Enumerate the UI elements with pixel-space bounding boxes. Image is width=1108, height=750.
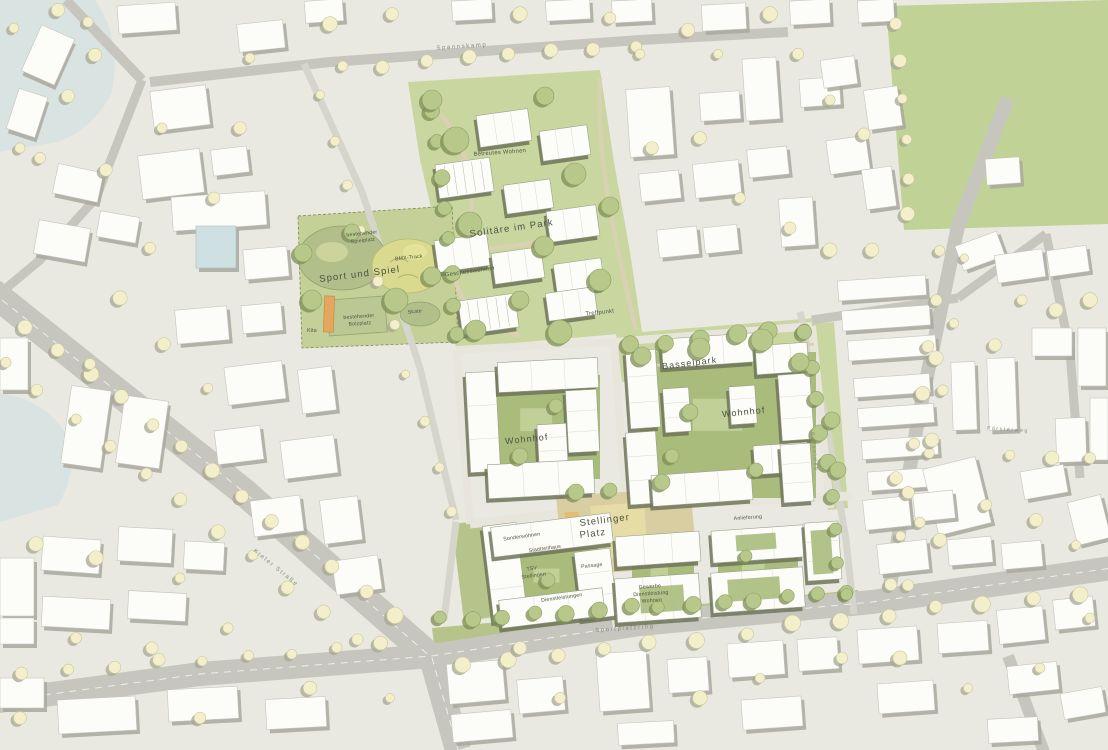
tree-icon: [447, 506, 457, 516]
building: [1032, 328, 1075, 360]
building-roof: [503, 179, 554, 214]
playground-inner: [316, 242, 348, 262]
building: [297, 366, 340, 418]
tree-icon: [1005, 450, 1015, 460]
building: [451, 709, 517, 746]
building-roof: [452, 0, 493, 21]
tree-icon: [782, 589, 795, 602]
tree-icon: [646, 142, 659, 155]
tree-icon: [15, 143, 25, 153]
building: [937, 620, 992, 658]
tree-icon: [71, 414, 81, 424]
building: [452, 0, 496, 25]
building: [797, 636, 842, 675]
tree-icon: [916, 386, 930, 400]
tree-icon: [740, 550, 752, 562]
tree-icon: [898, 94, 908, 104]
building-roof: [241, 302, 283, 333]
tree-icon: [924, 448, 934, 458]
building-roof: [211, 146, 250, 176]
tree-icon: [422, 90, 442, 110]
new-building: [562, 389, 599, 457]
tree-icon: [1083, 293, 1098, 308]
building: [863, 85, 906, 134]
tree-icon: [586, 43, 599, 56]
tree-icon: [833, 613, 849, 629]
building-roof: [115, 395, 168, 468]
tree-icon: [693, 691, 708, 706]
tree-icon: [465, 612, 480, 627]
tree-icon: [1085, 613, 1095, 623]
tree-icon: [811, 587, 824, 600]
building: [742, 57, 784, 125]
tree-icon: [287, 649, 297, 659]
building-roof: [1078, 328, 1106, 386]
tree-icon: [746, 593, 762, 609]
tree-icon: [157, 123, 167, 133]
tree-icon: [865, 243, 879, 257]
building-roof: [861, 166, 896, 210]
building: [546, 0, 594, 25]
building-roof: [0, 558, 34, 616]
building: [183, 541, 228, 575]
tree-icon: [598, 643, 611, 656]
tree-icon: [642, 635, 656, 649]
tree-icon: [791, 353, 809, 371]
building-roof: [1001, 540, 1043, 569]
building-roof: [332, 555, 382, 595]
tree-icon: [963, 683, 972, 692]
building: [611, 0, 655, 27]
building: [243, 246, 293, 284]
building-roof: [138, 148, 205, 199]
building: [0, 618, 37, 648]
tree-icon: [421, 55, 433, 67]
tree-icon: [51, 3, 64, 16]
tree-icon: [338, 61, 348, 71]
tree-icon: [244, 650, 254, 660]
building: [250, 495, 307, 541]
tree-icon: [836, 652, 848, 664]
tree-icon: [989, 339, 1002, 352]
tree-icon: [681, 23, 694, 36]
building-blue-roof: [196, 226, 239, 272]
tree-icon: [903, 173, 914, 184]
building: [596, 650, 653, 716]
tree-icon: [386, 8, 399, 21]
building-roof: [615, 531, 701, 567]
building-roof: [742, 57, 780, 121]
tree-icon: [589, 269, 611, 291]
tree-icon: [824, 412, 840, 428]
building: [1046, 245, 1093, 281]
building-roof: [214, 425, 264, 464]
building: [41, 596, 114, 634]
building-roof: [863, 86, 902, 130]
tree-icon: [658, 335, 674, 351]
tree-icon: [302, 290, 322, 310]
tree-icon: [265, 514, 279, 528]
tree-icon: [635, 49, 645, 59]
tree-icon: [384, 288, 408, 312]
tree-icon: [330, 136, 340, 146]
building: [857, 626, 922, 668]
tree-icon: [1084, 452, 1095, 463]
tree-icon: [1, 357, 11, 367]
tree-icon: [211, 525, 225, 539]
building-roof: [183, 541, 224, 571]
building: [117, 527, 176, 568]
building: [175, 306, 233, 349]
tree-icon: [893, 54, 906, 67]
tree-icon: [435, 463, 444, 472]
building-roof: [857, 626, 919, 664]
tree-icon: [443, 127, 469, 153]
tree-icon: [604, 12, 616, 24]
tree-icon: [203, 383, 213, 393]
tree-icon: [591, 602, 607, 618]
tree-icon: [332, 642, 342, 652]
building: [987, 717, 1041, 748]
tree-icon: [205, 463, 220, 478]
building-roof: [857, 0, 894, 23]
tree-icon: [826, 489, 840, 503]
tree-icon: [100, 164, 113, 177]
tree-icon: [513, 7, 528, 22]
building-roof: [250, 495, 304, 537]
tree-icon: [934, 246, 944, 256]
tree-icon: [534, 236, 554, 256]
building-roof: [937, 620, 989, 653]
tree-icon: [922, 341, 934, 353]
tree-icon: [360, 585, 373, 598]
building-roof: [243, 246, 289, 280]
tree-icon: [245, 53, 255, 63]
tree-icon: [495, 610, 510, 625]
building-roof: [987, 717, 1038, 744]
tree-icon: [144, 242, 155, 253]
building: [0, 558, 37, 620]
building: [877, 539, 933, 578]
site-plan: Solitäre im Park Sport und Spiel Basselp…: [0, 0, 1108, 750]
tree-icon: [29, 537, 43, 551]
tree-icon: [88, 48, 101, 61]
building-roof: [789, 0, 830, 25]
building-roof: [667, 657, 709, 694]
building-roof: [1055, 417, 1087, 462]
building: [115, 395, 172, 473]
building: [877, 680, 938, 718]
tree-icon: [896, 531, 906, 541]
building: [701, 3, 750, 35]
tree-icon: [1049, 303, 1063, 317]
building-roof: [497, 357, 598, 392]
building-roof: [1032, 328, 1072, 356]
tree-icon: [146, 642, 158, 654]
tree-icon: [323, 17, 338, 32]
building-roof: [657, 226, 700, 258]
tree-icon: [295, 535, 310, 550]
building-roof: [476, 109, 532, 148]
building-roof: [297, 366, 336, 414]
building-roof: [117, 527, 173, 564]
tree-icon: [342, 180, 352, 190]
new-building: [612, 531, 701, 571]
tree-icon: [792, 48, 803, 59]
tree-icon: [89, 551, 103, 565]
tree-icon: [83, 17, 93, 27]
building-roof: [947, 536, 993, 566]
tree-icon: [1045, 451, 1059, 465]
building-roof: [57, 696, 137, 734]
tree-icon: [909, 438, 920, 449]
building-roof: [639, 170, 682, 202]
tree-icon: [960, 254, 968, 262]
new-building: [777, 443, 814, 507]
tree-icon: [890, 18, 902, 30]
tree-icon: [438, 201, 452, 215]
tree-icon: [1027, 592, 1041, 606]
building: [778, 197, 819, 251]
tree-icon: [1017, 295, 1027, 305]
tree-icon: [423, 267, 441, 285]
building-roof: [1090, 398, 1108, 460]
tree-icon: [316, 90, 325, 99]
building: [657, 226, 703, 262]
tree-icon: [513, 641, 526, 654]
building: [280, 434, 342, 483]
tree-icon: [784, 222, 796, 234]
tree-icon: [554, 692, 565, 703]
tree-icon: [902, 134, 912, 144]
building: [617, 720, 677, 749]
tree-icon: [654, 474, 670, 490]
tree-icon: [114, 390, 128, 404]
building: [319, 495, 366, 548]
tree-icon: [450, 327, 464, 341]
tree-icon: [502, 48, 515, 61]
tree-icon: [902, 486, 914, 498]
tree-icon: [175, 440, 187, 452]
tree-icon: [1029, 513, 1042, 526]
tree-icon: [930, 600, 942, 612]
tree-icon: [763, 7, 778, 22]
tree-icon: [317, 605, 331, 619]
tree-icon: [18, 320, 32, 334]
new-building: [473, 109, 532, 152]
tree-icon: [937, 385, 948, 396]
tree-icon: [208, 192, 220, 204]
tree-icon: [141, 468, 152, 479]
building-roof: [778, 373, 815, 441]
building: [224, 360, 290, 409]
building: [237, 19, 289, 56]
tree-icon: [511, 291, 529, 309]
tree-icon: [694, 132, 707, 145]
building-roof: [196, 226, 236, 268]
building-roof: [41, 596, 110, 630]
building-roof: [820, 56, 858, 88]
tree-icon: [893, 651, 907, 665]
tree-icon: [374, 636, 388, 650]
building-roof: [465, 371, 500, 472]
tree-icon: [1035, 663, 1045, 673]
tree-icon: [601, 197, 619, 215]
tree-icon: [980, 499, 991, 510]
building-roof: [741, 696, 803, 730]
tree-icon: [9, 23, 19, 33]
building-roof: [701, 3, 746, 31]
tree-icon: [841, 588, 853, 600]
building-roof: [996, 606, 1045, 645]
building-roof: [0, 678, 44, 708]
building-roof: [537, 423, 568, 464]
tree-icon: [933, 533, 947, 547]
tree-icon: [352, 634, 363, 645]
tree-icon: [51, 343, 64, 356]
tree-icon: [603, 483, 617, 497]
tree-icon: [735, 193, 746, 204]
tree-icon: [234, 122, 247, 135]
tree-icon: [689, 633, 705, 649]
tree-icon: [455, 657, 471, 673]
tree-icon: [34, 152, 45, 163]
tree-icon: [466, 320, 486, 340]
building-roof: [565, 389, 599, 453]
building: [667, 656, 713, 697]
building-roof: [951, 362, 977, 431]
building-roof: [877, 680, 935, 714]
tree-icon: [929, 351, 943, 365]
building-roof: [0, 618, 34, 644]
tree-icon: [890, 472, 903, 485]
tree-icon: [402, 370, 410, 378]
tree-icon: [153, 653, 165, 665]
building: [241, 302, 287, 338]
tree-icon: [84, 358, 95, 369]
label-kita: Kita: [307, 328, 317, 334]
building-roof: [692, 160, 741, 199]
building-roof: [117, 2, 177, 34]
tree-icon: [784, 615, 800, 631]
tree-icon: [718, 595, 732, 609]
building: [861, 166, 900, 214]
building-roof: [747, 146, 790, 178]
tree-icon: [902, 580, 913, 591]
tree-icon: [434, 611, 447, 624]
building: [699, 90, 744, 125]
building-roof: [617, 721, 674, 746]
tree-icon: [109, 661, 121, 673]
tree-icon: [551, 648, 565, 662]
tree-icon: [390, 320, 400, 330]
tree-icon: [830, 462, 846, 478]
tree-icon: [385, 693, 394, 702]
tree-icon: [63, 664, 74, 675]
tree-icon: [420, 416, 430, 426]
building: [1001, 540, 1046, 574]
tree-icon: [568, 484, 584, 500]
building-roof: [797, 637, 839, 672]
building-roof: [877, 539, 930, 574]
building-roof: [1046, 245, 1089, 276]
building-roof: [729, 385, 758, 425]
tree-icon: [15, 667, 28, 680]
tree-icon: [825, 95, 835, 105]
tree-icon: [175, 573, 185, 583]
tree-icon: [751, 329, 773, 351]
building-roof: [280, 435, 338, 479]
tree-icon: [113, 291, 127, 305]
kita-building: [323, 296, 334, 332]
tree-icon: [157, 337, 170, 350]
building-roof: [596, 650, 650, 711]
building-roof: [727, 640, 785, 678]
tree-icon: [70, 632, 81, 643]
tree-icon: [685, 596, 701, 612]
tree-icon: [797, 325, 812, 340]
tree-icon: [147, 419, 159, 431]
tree-icon: [1071, 540, 1080, 549]
building-roof: [546, 0, 591, 21]
building: [985, 157, 1024, 190]
tree-icon: [194, 712, 206, 724]
building: [863, 495, 915, 534]
tree-icon: [830, 523, 842, 535]
tree-icon: [235, 490, 248, 503]
tree-icon: [544, 44, 558, 58]
tree-icon: [303, 681, 317, 695]
building-roof: [1007, 661, 1060, 694]
tree-icon: [105, 440, 117, 452]
tree-icon: [294, 244, 312, 262]
tree-icon: [1072, 587, 1088, 603]
tree-icon: [512, 448, 528, 464]
tree-icon: [625, 598, 640, 613]
new-building: [462, 371, 500, 477]
tree-icon: [376, 61, 389, 74]
building-roof: [703, 224, 740, 253]
building: [987, 357, 1021, 434]
tree-icon: [387, 607, 403, 623]
tree-icon: [325, 559, 339, 573]
building: [820, 55, 861, 92]
tree-icon: [14, 712, 27, 725]
roof-garden: [735, 533, 776, 552]
building-roof: [539, 125, 591, 161]
building-roof: [265, 696, 326, 729]
tree-icon: [549, 399, 563, 413]
building-roof: [985, 157, 1021, 185]
tree-icon: [729, 325, 747, 343]
building: [0, 678, 47, 712]
building-roof: [987, 358, 1017, 431]
tree-icon: [885, 579, 897, 591]
tree-icon: [548, 320, 572, 344]
building: [1078, 328, 1108, 390]
building-roof: [778, 197, 815, 247]
tree-icon: [949, 319, 958, 328]
building-roof: [224, 361, 286, 406]
tree-icon: [831, 557, 843, 569]
tree-icon: [31, 384, 43, 396]
tree-icon: [809, 391, 823, 405]
building-roof: [546, 205, 600, 243]
tree-icon: [536, 87, 554, 105]
building-roof: [451, 709, 513, 742]
tree-icon: [197, 656, 207, 666]
building: [951, 361, 980, 434]
